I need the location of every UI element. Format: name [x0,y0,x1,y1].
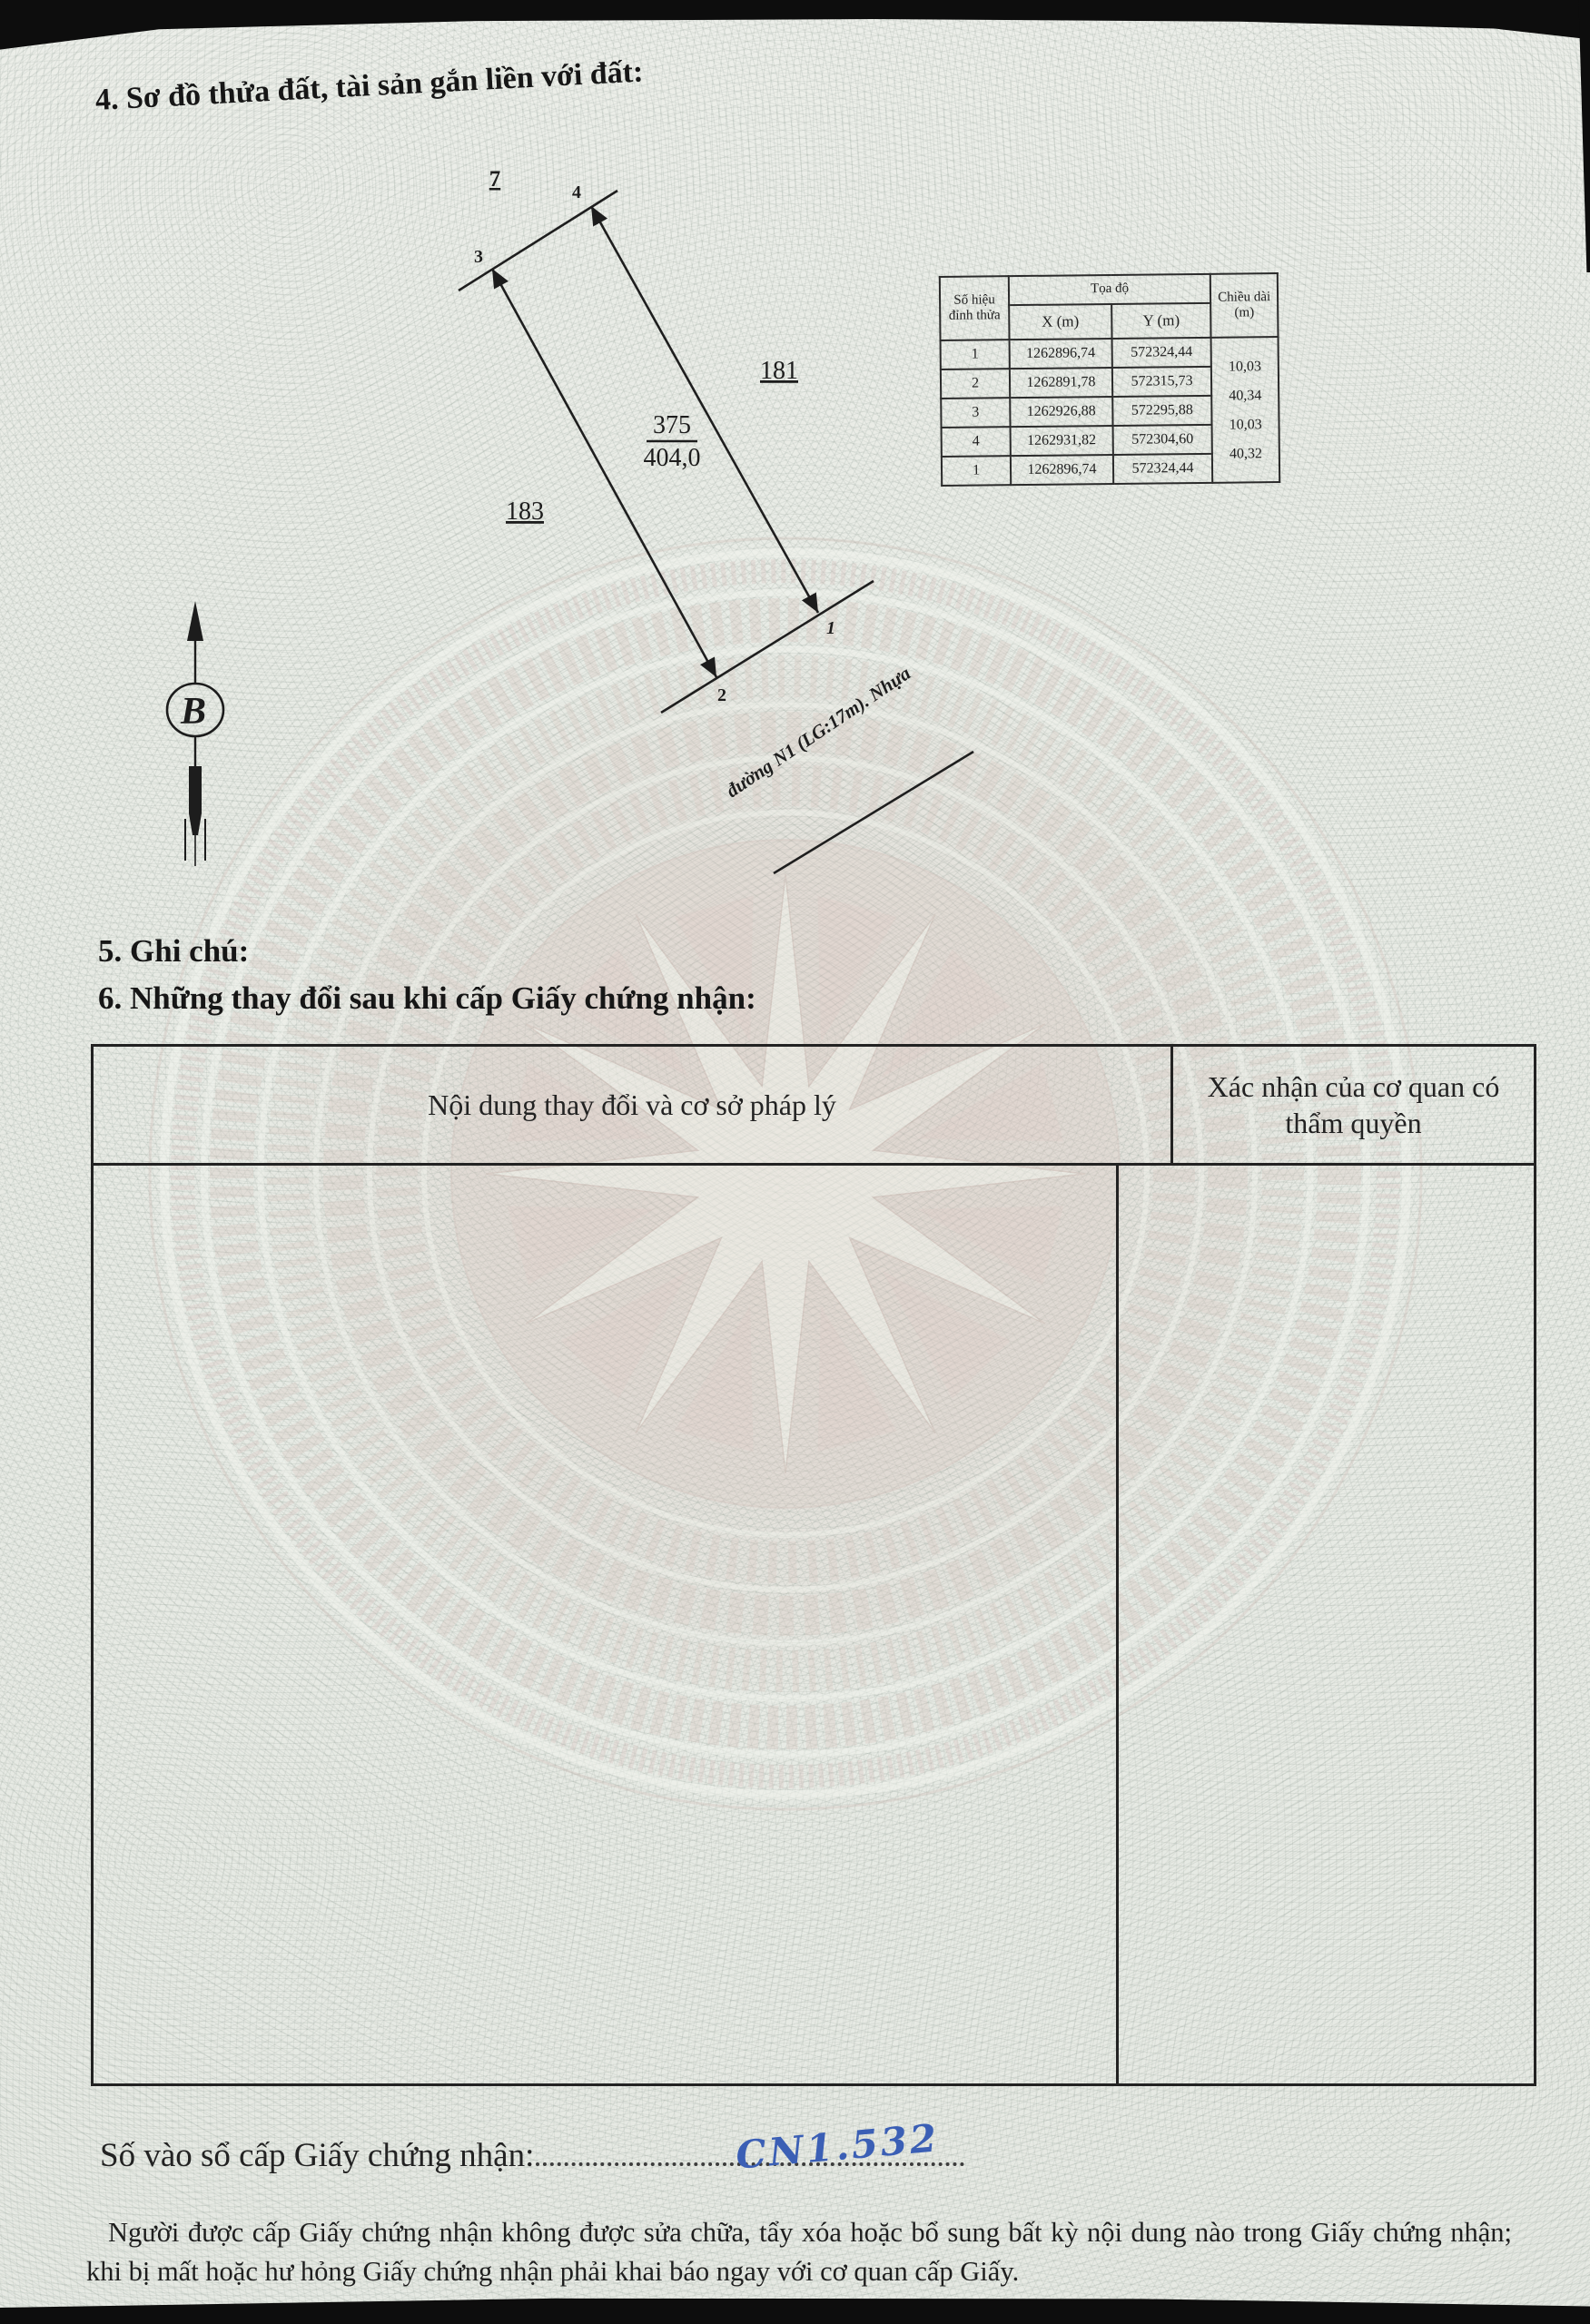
vertex-id-cell: 1 [942,456,1011,486]
header-coords: Tọa độ [1009,274,1211,305]
registry-line: Số vào sổ cấp Giấy chứng nhận: CN1.532 [100,2135,964,2175]
road-far-edge [774,752,973,873]
parcel-edge-left [492,269,716,677]
length-value: 10,03 [1213,415,1279,436]
changes-col-content-header: Nội dung thay đổi và cơ sở pháp lý [94,1047,1173,1163]
x-cell: 1262891,78 [1010,368,1112,398]
header-y: Y (m) [1111,303,1211,339]
vertex-id-cell: 1 [941,340,1010,369]
adjacent-plot-right-label: 181 [760,357,798,385]
changes-table-body [94,1166,1534,2083]
x-cell: 1262896,74 [1010,339,1112,369]
compass-quill [189,766,202,835]
changes-col-confirm-header: Xác nhận của cơ quan có thẩm quyền [1173,1047,1534,1163]
compass-arrowhead [187,601,203,641]
x-cell: 1262931,82 [1011,426,1113,456]
vertex-id-cell: 4 [942,427,1011,457]
y-cell: 572304,60 [1112,425,1212,455]
changes-content-cell [94,1166,1119,2083]
parcel-edge-right [591,206,818,613]
vertex-label-1: 1 [826,618,835,638]
x-cell: 1262926,88 [1010,397,1112,427]
plot-number-label: 375 [653,411,691,439]
coord-row: 1 1262896,74 572324,44 10,03 40,34 10,03… [941,337,1279,369]
parcel-edge-top [459,191,617,290]
compass-north-letter: B [180,691,206,733]
parcel-edge-bottom [661,581,874,713]
length-cell: 10,03 40,34 10,03 40,32 [1211,337,1279,483]
registry-label: Số vào sổ cấp Giấy chứng nhận: [100,2137,534,2174]
x-cell: 1262896,74 [1011,455,1113,485]
header-vertex: Số hiệu đỉnh thửa [940,276,1010,340]
y-cell: 572315,73 [1112,367,1212,397]
length-value: 10,03 [1212,357,1278,378]
vertex-id-cell: 2 [941,369,1010,399]
vertex-label-4: 4 [572,182,581,202]
y-cell: 572324,44 [1111,338,1211,368]
changes-table-header: Nội dung thay đổi và cơ sở pháp lý Xác n… [94,1047,1534,1166]
road-label: đường N1 (LG:17m). Nhựa [722,662,914,802]
changes-table: Nội dung thay đổi và cơ sở pháp lý Xác n… [91,1044,1536,2086]
length-value: 40,34 [1212,386,1278,407]
header-x: X (m) [1009,304,1111,340]
north-compass-icon: B [167,601,223,866]
vertex-label-2: 2 [717,685,726,705]
coordinate-table: Số hiệu đỉnh thửa Tọa độ Chiều dài (m) X… [939,272,1280,487]
footer-note: Người được cấp Giấy chứng nhận không đượ… [86,2213,1512,2292]
vertex-id-cell: 3 [941,398,1010,428]
y-cell: 572295,88 [1112,396,1212,426]
adjacent-plot-bottom-left-label: 183 [506,497,544,526]
changes-confirm-cell [1119,1166,1534,2083]
header-length: Chiều dài (m) [1210,273,1278,338]
certificate-page: 4. Sơ đồ thửa đất, tài sản gắn liền với … [0,0,1590,2324]
y-cell: 572324,44 [1113,454,1213,484]
vertex-label-3: 3 [474,247,483,267]
length-value: 40,32 [1213,444,1279,465]
plot-area-label: 404,0 [644,444,701,472]
adjacent-plot-top-label: 7 [489,167,501,192]
